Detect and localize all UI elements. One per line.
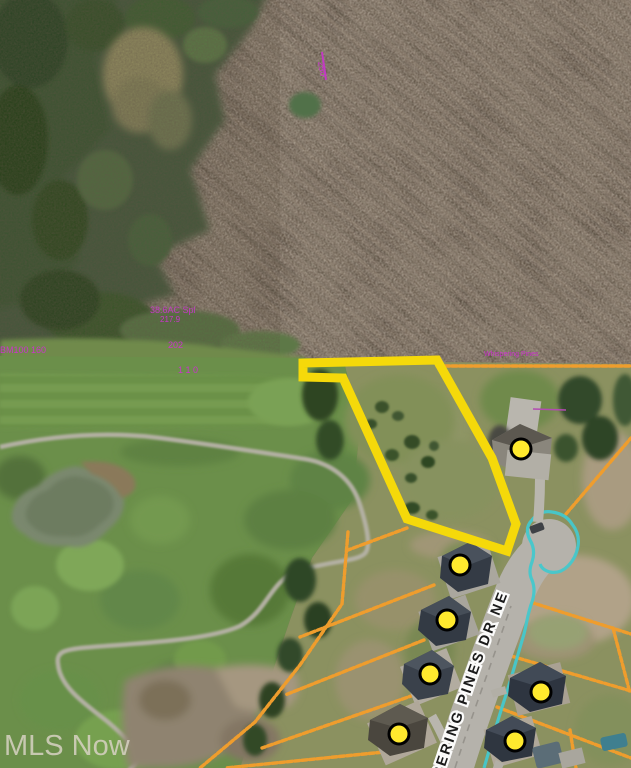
svg-text:202: 202 [168, 340, 183, 350]
svg-text:Whispering Pines: Whispering Pines [484, 351, 539, 358]
svg-text:MLS Now: MLS Now [4, 730, 131, 762]
svg-text:1 1 0: 1 1 0 [178, 365, 198, 375]
svg-text:BM100 160: BM100 160 [0, 345, 46, 355]
svg-text:38.6AC Spl: 38.6AC Spl [150, 305, 196, 315]
svg-text:217.9: 217.9 [160, 315, 181, 324]
